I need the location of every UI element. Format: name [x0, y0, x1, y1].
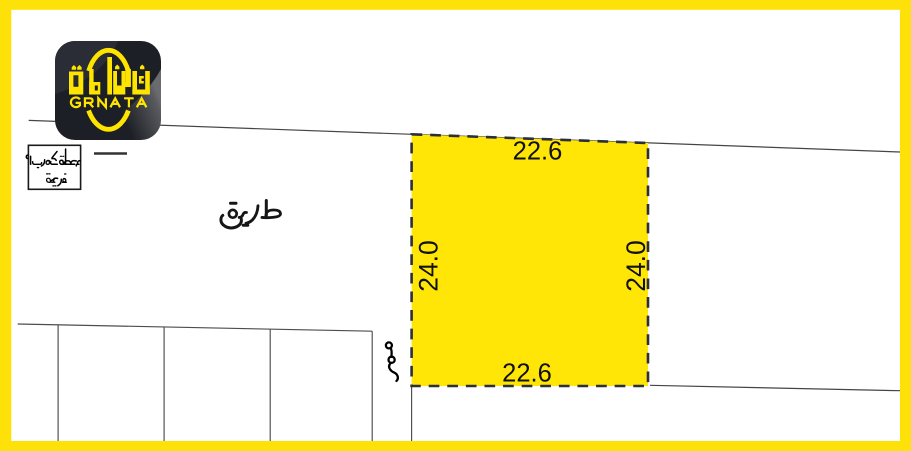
svg-text:22.6: 22.6: [513, 138, 563, 166]
svg-text:24.0: 24.0: [414, 240, 444, 292]
svg-text:22.6: 22.6: [502, 359, 552, 387]
svg-text:24.0: 24.0: [621, 240, 651, 292]
